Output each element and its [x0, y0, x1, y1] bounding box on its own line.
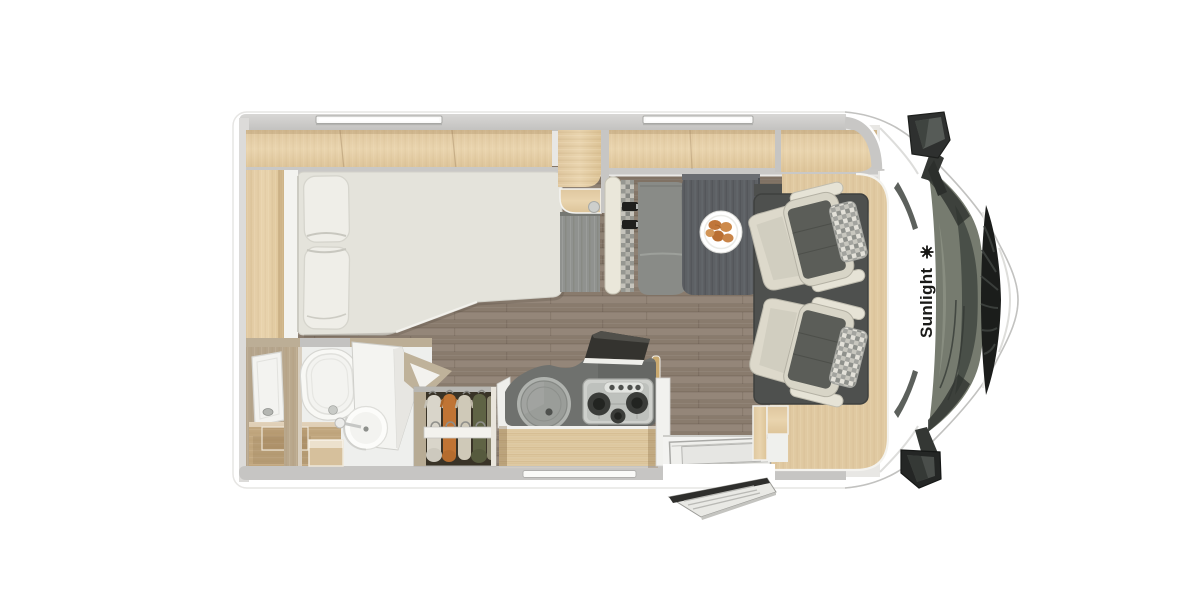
svg-text:Sunlight: Sunlight: [917, 268, 936, 338]
